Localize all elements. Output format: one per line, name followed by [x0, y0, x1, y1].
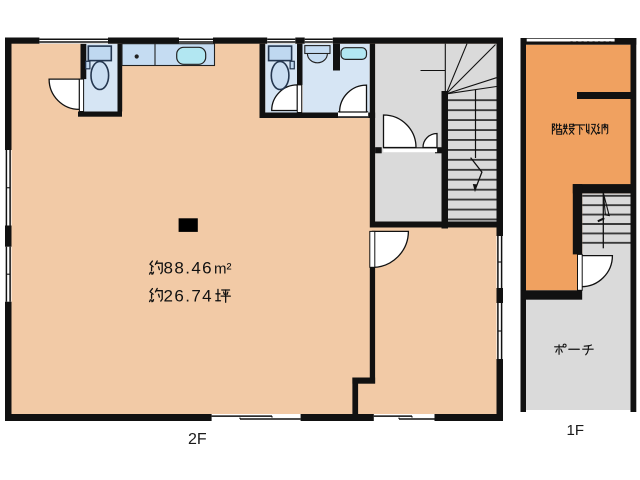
svg-text:m²: m²: [214, 261, 232, 278]
svg-text:2F: 2F: [188, 431, 207, 448]
svg-text:1F: 1F: [567, 422, 585, 439]
svg-text:88.46: 88.46: [164, 259, 214, 278]
svg-text:26.74: 26.74: [164, 287, 214, 306]
